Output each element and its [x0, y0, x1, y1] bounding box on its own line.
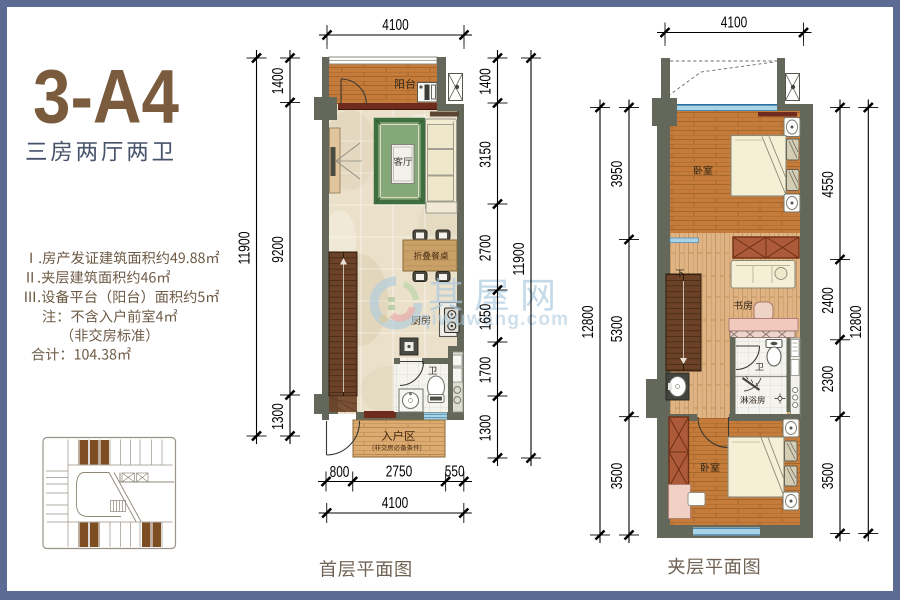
svg-text:12800: 12800	[848, 305, 865, 338]
svg-text:3500: 3500	[609, 463, 626, 490]
svg-text:5300: 5300	[609, 316, 626, 343]
svg-text:1300: 1300	[270, 403, 287, 430]
svg-text:3-A4: 3-A4	[33, 55, 179, 140]
svg-text:3500: 3500	[820, 463, 837, 490]
svg-text:1300: 1300	[478, 415, 495, 442]
svg-text:550: 550	[445, 464, 465, 481]
svg-text:1650: 1650	[478, 304, 495, 331]
svg-text:11900: 11900	[511, 242, 528, 275]
svg-text:4100: 4100	[382, 495, 409, 512]
svg-text:4100: 4100	[721, 15, 748, 32]
svg-text:3950: 3950	[609, 161, 626, 188]
svg-text:2750: 2750	[386, 464, 413, 481]
svg-text:4550: 4550	[820, 171, 837, 198]
svg-text:3150: 3150	[478, 141, 495, 168]
svg-text:1700: 1700	[478, 357, 495, 384]
svg-text:2400: 2400	[820, 287, 837, 314]
svg-text:1400: 1400	[270, 68, 287, 95]
svg-text:800: 800	[330, 464, 350, 481]
svg-text:9200: 9200	[270, 236, 287, 263]
svg-text:2700: 2700	[478, 235, 495, 262]
svg-text:12800: 12800	[580, 305, 597, 338]
svg-text:2300: 2300	[820, 366, 837, 393]
svg-text:4100: 4100	[382, 17, 409, 34]
svg-text:11900: 11900	[237, 231, 254, 264]
svg-text:1400: 1400	[478, 68, 495, 95]
